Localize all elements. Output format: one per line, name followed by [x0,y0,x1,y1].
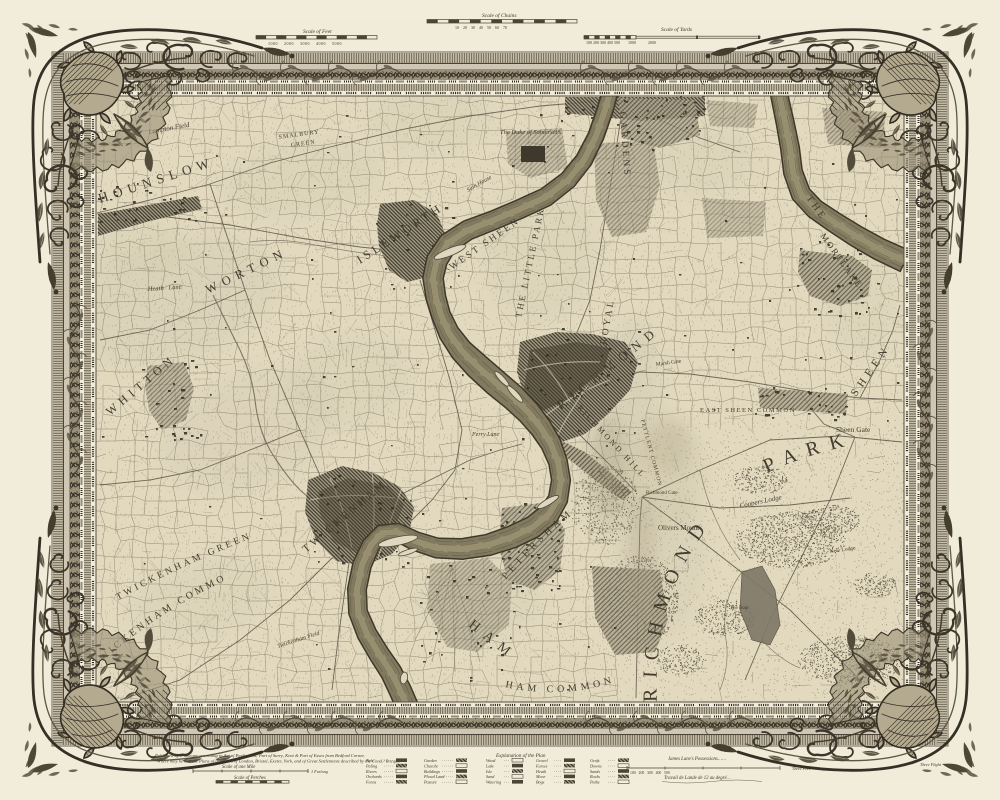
svg-text:Fenns: Fenns [365,780,377,785]
svg-text:Pasture: Pasture [423,780,437,785]
svg-text:Heath: Heath [535,769,546,774]
svg-text:100 200 300 400 500: 100 200 300 400 500 [630,771,670,775]
svg-text:Pale: Pale [365,758,374,763]
svg-text:Three Feet: Three Feet [792,766,811,771]
svg-text:Grafs: Grafs [590,758,600,763]
svg-text:1000 2000 3000 4000: 1000 2000 3000 4000 5000 [268,41,342,46]
svg-text:10 20 30 40 50: 10 20 30 40 50 60 70 [455,25,507,30]
svg-text:Plowd Land: Plowd Land [423,774,445,779]
svg-text:Isle: Isle [485,769,492,774]
svg-text:Sand: Sand [486,774,495,779]
svg-text:Downs: Downs [589,763,602,768]
svg-text:Paling: Paling [365,763,377,768]
svg-text:James Lane’s Possessions……: James Lane’s Possessions…… [668,757,726,762]
svg-text:Gravel: Gravel [536,758,548,763]
svg-text:Garden: Garden [424,758,437,763]
svg-text:Rivers: Rivers [365,769,377,774]
svg-text:Wood: Wood [486,758,496,763]
svg-text:Churche: Churche [424,763,438,768]
svg-text:Lake: Lake [485,763,494,768]
svg-text:Travail de Lande de 12 au degr: Travail de Lande de 12 au degré… [664,776,731,781]
svg-text:Furses: Furses [535,763,548,768]
svg-text:Scale of Chains: Scale of Chains [482,12,517,19]
svg-text:Paths: Paths [589,780,600,785]
svg-text:Rocks: Rocks [589,774,600,779]
svg-text:1 Furlong: 1 Furlong [311,769,328,774]
svg-text:Sands: Sands [590,769,600,774]
svg-text:100 200 300 400 500 100: 100 200 300 400 500 1000 2000 [586,40,656,45]
svg-text:Orchards: Orchards [366,774,382,779]
svg-text:Scale of Yards: Scale of Yards [661,26,692,33]
svg-text:Scale of Feet: Scale of Feet [303,28,332,35]
svg-text:Buildings: Buildings [424,769,440,774]
svg-text:Scale of one Mile: Scale of one Mile [222,765,256,770]
svg-text:Moor: Moor [535,774,546,779]
svg-text:Bogs: Bogs [536,780,545,785]
svg-text:Three Flight: Three Flight [920,762,942,767]
svg-text:Watering: Watering [486,780,501,785]
